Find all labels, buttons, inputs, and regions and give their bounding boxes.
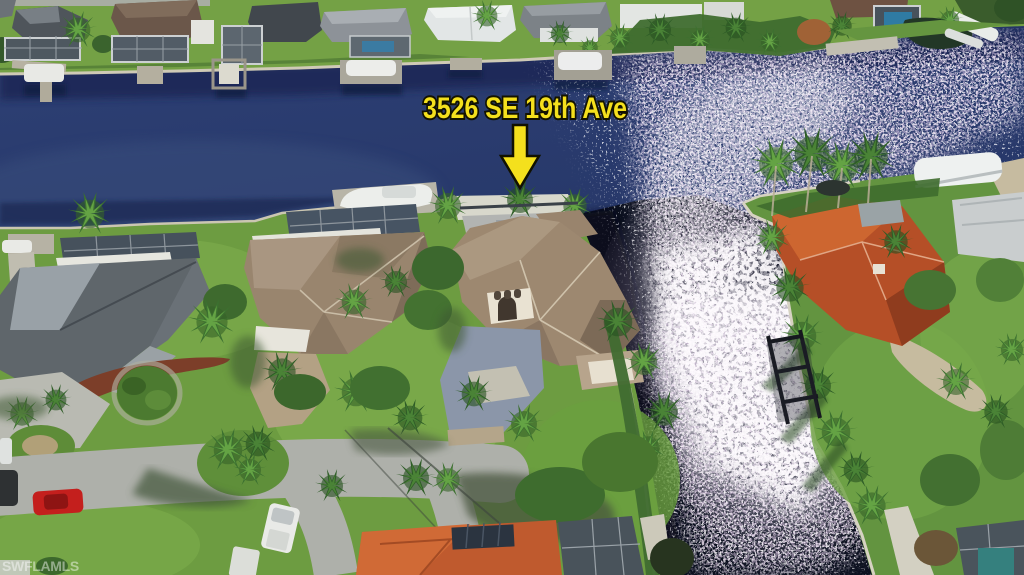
svg-text:SWFLAMLS: SWFLAMLS (2, 558, 79, 574)
svg-text:3526 SE 19th Ave: 3526 SE 19th Ave (423, 92, 627, 125)
